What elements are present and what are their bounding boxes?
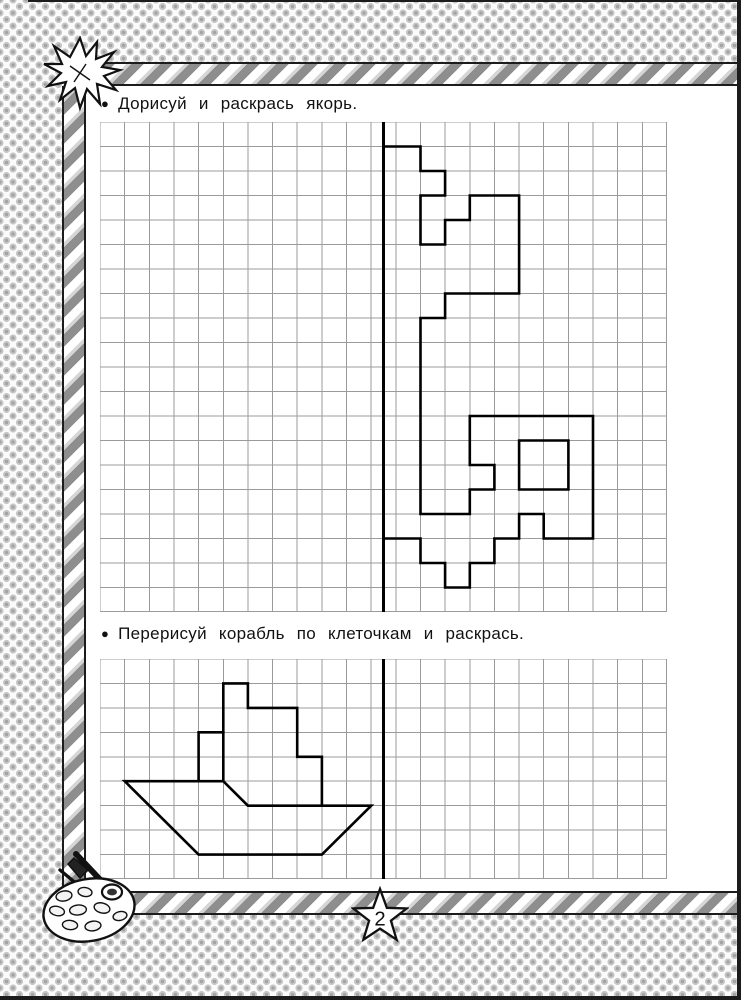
striped-border-top: [86, 62, 737, 86]
instruction-anchor: ● Дорисуй и раскрась якорь.: [101, 93, 357, 115]
page-edge-top: [28, 0, 741, 2]
page-number: 2: [374, 909, 385, 931]
palette-thumb-hole-shadow: [107, 889, 117, 896]
page-number-star: 2: [351, 886, 409, 948]
instruction-text: Дорисуй и раскрась якорь.: [118, 93, 357, 115]
page-edge-right: [737, 0, 741, 1000]
anchor-grid-canvas[interactable]: [100, 122, 667, 612]
palette-and-brushes-icon: [30, 848, 148, 952]
striped-border-left: [62, 86, 86, 917]
ship-superstructure: [199, 683, 322, 805]
workbook-page: { "page_number": "2", "exercises": [ { "…: [0, 0, 741, 1000]
page-edge-bottom: [0, 996, 741, 1000]
instruction-text: Перерисуй корабль по клеточкам и раскрас…: [118, 623, 524, 645]
paint-splat-icon: [40, 36, 126, 118]
ship-grid-canvas[interactable]: [100, 659, 667, 879]
bullet-icon: ●: [101, 623, 109, 645]
instruction-ship: ● Перерисуй корабль по клеточкам и раскр…: [101, 623, 524, 645]
